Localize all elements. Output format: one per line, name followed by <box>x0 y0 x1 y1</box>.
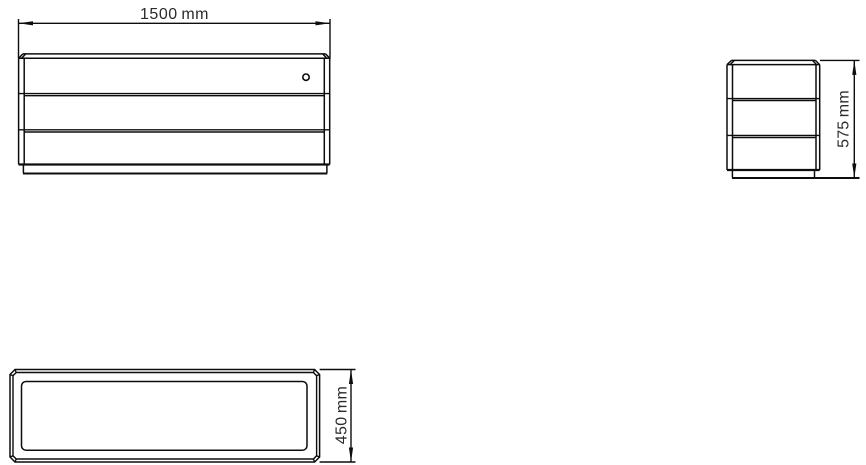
svg-text:575 mm: 575 mm <box>835 90 852 148</box>
svg-text:1500 mm: 1500 mm <box>140 6 209 23</box>
svg-text:450 mm: 450 mm <box>333 386 350 444</box>
